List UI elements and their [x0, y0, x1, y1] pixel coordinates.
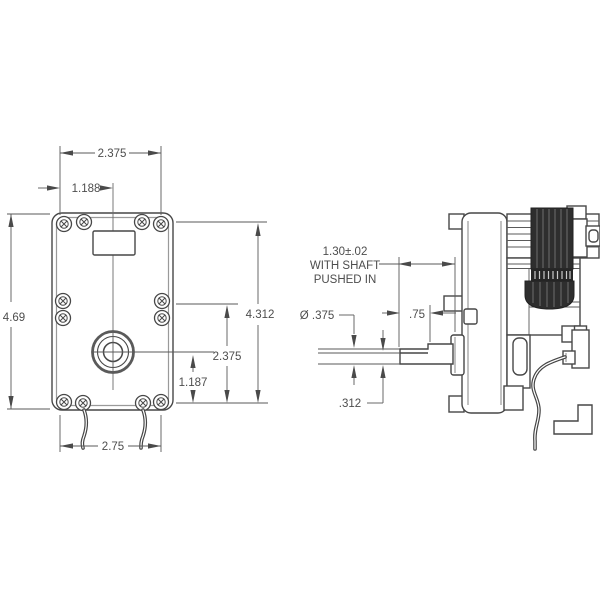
dim-front-mid-to-bottom: 2.375	[213, 305, 242, 403]
power-wire	[533, 357, 565, 449]
dim-label-shaft-to-bottom: 1.187	[179, 377, 208, 389]
dim-label-shaft-diameter: Ø .375	[300, 310, 335, 322]
dim-label-shaft-flat: .312	[339, 398, 361, 410]
motor-coil	[525, 208, 574, 309]
front-view: 2.375 1.188 4.69	[3, 146, 275, 453]
dim-label-mid-to-bottom: 2.375	[213, 351, 242, 363]
motor-body	[504, 206, 600, 449]
dim-front-width-half: 1.188	[38, 183, 113, 195]
dim-label-shaft-pushed-1: 1.30±.02	[323, 246, 368, 258]
dim-front-height: 4.69	[3, 214, 50, 409]
dim-front-mount-span: 4.312	[246, 223, 275, 403]
dim-front-shaft-to-bottom: 1.187	[179, 355, 208, 403]
dim-label-width-bottom: 2.75	[102, 441, 124, 453]
dim-side-shaft-flat: .312	[339, 330, 386, 410]
dim-label-height: 4.69	[3, 312, 25, 324]
technical-drawing: 2.375 1.188 4.69	[0, 0, 600, 600]
dim-label-mount-span: 4.312	[246, 309, 275, 321]
side-view: 1.30±.02 WITH SHAFT PUSHED IN Ø .375 .75	[300, 206, 600, 449]
motor-lower-frame	[504, 335, 530, 410]
mounting-bracket-foot	[554, 405, 592, 434]
dim-label-width-half: 1.188	[72, 183, 101, 195]
dim-side-shaft-pushed: 1.30±.02 WITH SHAFT PUSHED IN	[310, 246, 455, 286]
dim-front-width-top: 2.375	[60, 146, 161, 215]
nameplate	[93, 231, 135, 255]
dim-label-shaft-pushed-2: WITH SHAFT	[310, 260, 380, 272]
dim-label-width-top: 2.375	[98, 148, 127, 160]
dim-label-shaft-pushed-3: PUSHED IN	[314, 274, 377, 286]
dim-side-shaft-diameter: Ø .375	[300, 310, 357, 385]
dim-label-shaft-length: .75	[409, 309, 425, 321]
output-shaft-side	[400, 335, 464, 375]
